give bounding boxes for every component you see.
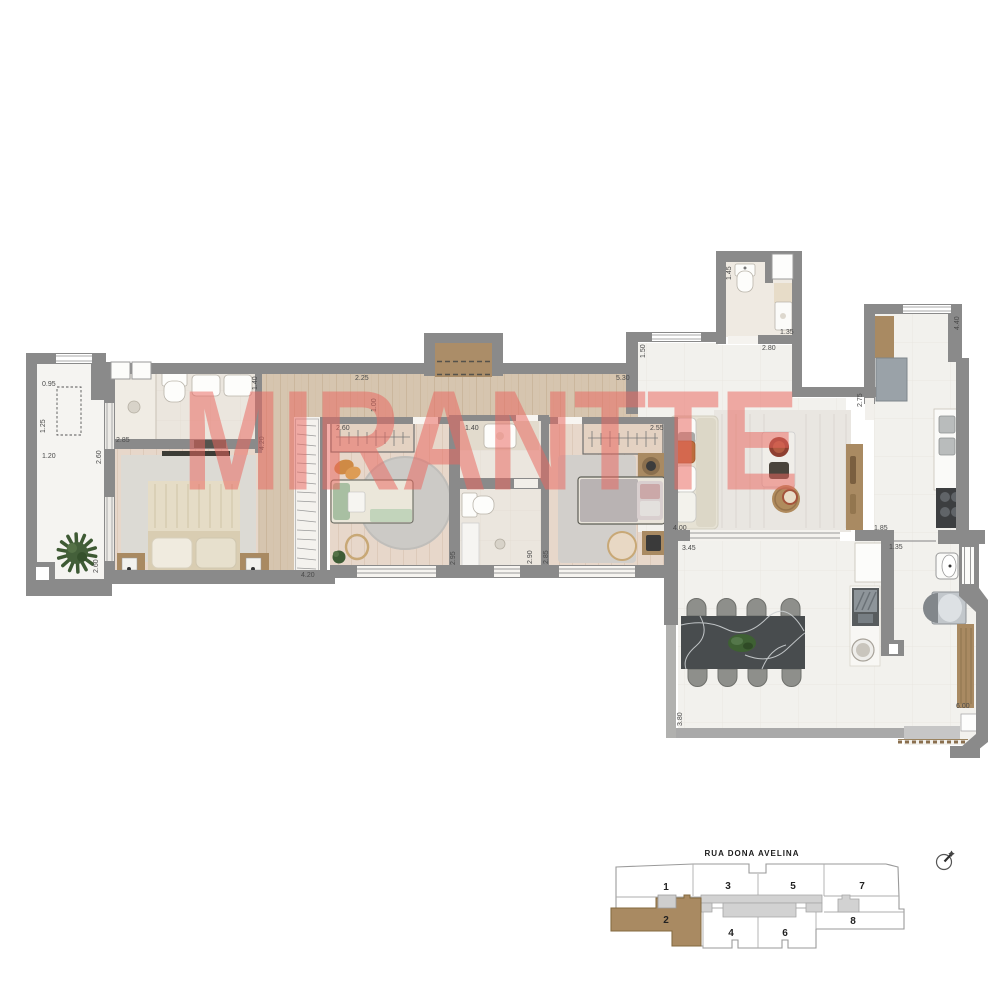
svg-text:1.20: 1.20 <box>42 453 56 460</box>
svg-text:1.35: 1.35 <box>780 329 794 336</box>
svg-text:3: 3 <box>725 881 731 892</box>
svg-text:3.80: 3.80 <box>677 712 684 726</box>
svg-text:2.60: 2.60 <box>93 559 100 573</box>
svg-text:4.40: 4.40 <box>954 316 961 330</box>
svg-text:6: 6 <box>782 928 788 939</box>
svg-text:1.45: 1.45 <box>726 266 733 280</box>
svg-text:0.95: 0.95 <box>42 381 56 388</box>
svg-text:1.50: 1.50 <box>640 344 647 358</box>
svg-text:2.75: 2.75 <box>857 393 864 407</box>
svg-text:2.60: 2.60 <box>96 450 103 464</box>
svg-text:RUA DONA AVELINA: RUA DONA AVELINA <box>705 849 800 858</box>
svg-text:5: 5 <box>790 881 796 892</box>
svg-text:1.25: 1.25 <box>40 419 47 433</box>
svg-text:2.80: 2.80 <box>762 345 776 352</box>
svg-text:7: 7 <box>859 881 865 892</box>
svg-text:8: 8 <box>850 916 856 927</box>
svg-text:1.35: 1.35 <box>889 544 903 551</box>
svg-text:MIRANTTE: MIRANTTE <box>182 361 800 520</box>
svg-text:1.85: 1.85 <box>874 525 888 532</box>
svg-text:4.00: 4.00 <box>673 525 687 532</box>
svg-text:3.45: 3.45 <box>682 545 696 552</box>
svg-text:2.90: 2.90 <box>527 550 534 564</box>
svg-text:4: 4 <box>728 928 734 939</box>
svg-text:6.00: 6.00 <box>956 703 970 710</box>
svg-text:2: 2 <box>663 915 669 926</box>
svg-text:2.85: 2.85 <box>116 437 130 444</box>
svg-text:1: 1 <box>663 882 669 893</box>
svg-text:2.95: 2.95 <box>450 551 457 565</box>
svg-text:4.20: 4.20 <box>301 572 315 579</box>
svg-text:2.85: 2.85 <box>543 550 550 564</box>
